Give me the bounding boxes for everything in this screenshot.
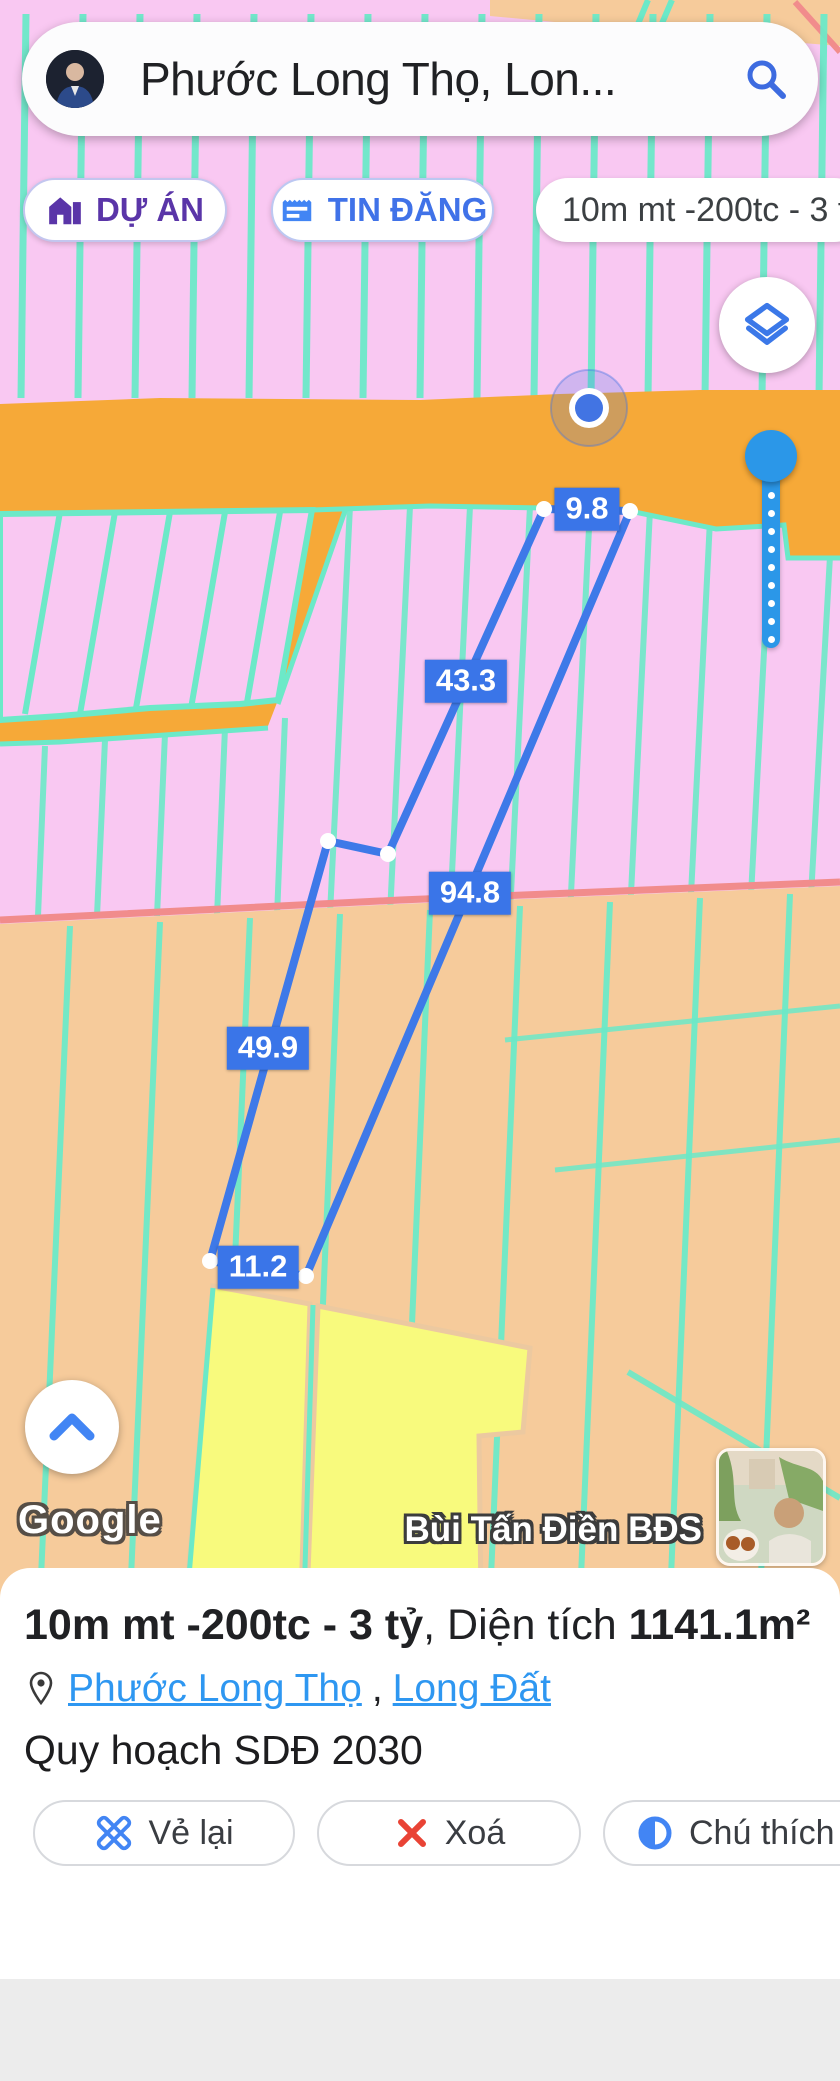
location-separator: ,: [372, 1667, 383, 1711]
zoom-slider-handle[interactable]: [745, 430, 797, 482]
redraw-icon: [94, 1813, 134, 1853]
map-canvas[interactable]: 9.843.394.849.911.2 Google Bù: [0, 0, 840, 1600]
google-logo: Google: [18, 1498, 162, 1543]
owner-photo: [716, 1448, 826, 1566]
delete-label: Xoá: [445, 1814, 506, 1853]
expand-button[interactable]: [25, 1380, 119, 1474]
delete-icon: [393, 1814, 431, 1852]
bottom-sheet: 10m mt -200tc - 3 tỷ, Diện tích 1141.1m²…: [0, 1568, 840, 1979]
chip-listing-info-label: 10m mt -200tc - 3 tỷ: [562, 191, 840, 230]
gesture-area: [0, 1979, 840, 2081]
listing-title-price: 10m mt -200tc - 3 tỷ: [24, 1601, 423, 1649]
plan-label: Quy hoạch SDĐ 2030: [24, 1727, 816, 1774]
location-row: Phước Long Thọ, Long Đất: [24, 1667, 816, 1711]
search-icon[interactable]: [742, 55, 790, 103]
measurement-label: 43.3: [425, 660, 507, 703]
newspaper-icon: [278, 191, 316, 229]
layers-icon: [739, 297, 795, 353]
chip-listings[interactable]: TIN ĐĂNG: [271, 178, 494, 242]
measurement-label: 94.8: [429, 872, 511, 915]
search-bar[interactable]: Phước Long Thọ, Lon...: [22, 22, 818, 136]
chip-listing-info[interactable]: 10m mt -200tc - 3 tỷ: [536, 178, 840, 242]
building-icon: [46, 191, 84, 229]
listing-area-value: 1141.1m²: [629, 1601, 811, 1649]
location-pin-icon: [24, 1670, 58, 1708]
legend-icon: [635, 1813, 675, 1853]
zoom-slider-track[interactable]: [762, 456, 780, 648]
my-location-dot: [551, 370, 627, 446]
measurement-label: 11.2: [218, 1246, 299, 1289]
search-input[interactable]: Phước Long Thọ, Lon...: [140, 52, 742, 106]
location-link-ward[interactable]: Phước Long Thọ: [68, 1667, 362, 1711]
chip-listings-label: TIN ĐĂNG: [328, 191, 488, 229]
location-link-district[interactable]: Long Đất: [393, 1667, 551, 1711]
listing-title: 10m mt -200tc - 3 tỷ, Diện tích 1141.1m²: [24, 1598, 816, 1653]
redraw-label: Vẻ lại: [148, 1814, 233, 1853]
redraw-button[interactable]: Vẻ lại: [33, 1800, 295, 1866]
user-avatar[interactable]: [46, 50, 104, 108]
chip-projects-label: DỰ ÁN: [96, 191, 204, 229]
measurement-label: 49.9: [227, 1027, 309, 1070]
layers-button[interactable]: [719, 277, 815, 373]
chevron-up-icon: [46, 1410, 98, 1444]
delete-button[interactable]: Xoá: [317, 1800, 581, 1866]
sheet-actions: Vẻ lại Xoá Chú thích: [24, 1800, 816, 1866]
legend-button[interactable]: Chú thích: [603, 1800, 840, 1866]
screen: 9.843.394.849.911.2 Google Bù: [0, 0, 840, 2081]
listing-title-area-label: , Diện tích: [423, 1601, 629, 1649]
measurement-label: 9.8: [554, 488, 619, 531]
chip-projects[interactable]: DỰ ÁN: [23, 178, 227, 242]
owner-watermark: Bùi Tấn Điền BĐS: [404, 1510, 702, 1550]
legend-label: Chú thích: [689, 1814, 835, 1853]
